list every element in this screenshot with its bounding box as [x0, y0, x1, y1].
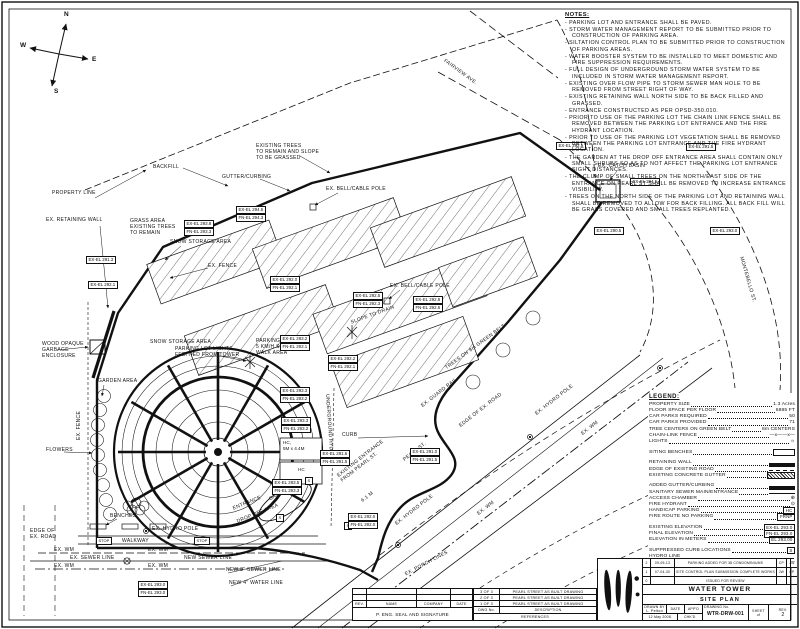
new-4-water-label: NEW 4" WATER LINE: [229, 580, 283, 586]
bell-cable-pole-label-2: EX. BELL/CABLE POLE: [390, 283, 450, 289]
note-item: - STORM WATER MANAGEMENT REPORT TO BE SU…: [565, 27, 791, 40]
ex-wm-label-3: EX. WM: [54, 563, 74, 569]
elevation-marker: EX-EL 292.2FN-EL 292.1: [328, 355, 358, 371]
seal-col-date: DATE: [451, 601, 472, 607]
note-item: - THE CLUMP OF SMALL TREES ON THE NORTH/…: [565, 174, 791, 193]
suppressed-curb-box-2: S: [276, 514, 284, 522]
elevation-marker: EX-EL 290.5: [594, 227, 624, 235]
dwg-no-header: DWG No.: [474, 607, 500, 613]
seal-col-rev: REV.: [353, 601, 367, 607]
note-item: - TREES ON THE NORTH SIDE OF THE PARKING…: [565, 194, 791, 213]
new-sewer-label: NEW SEWER LINE: [184, 555, 232, 561]
bell-cable-pole-label-1: EX. BELL/CABLE POLE: [326, 186, 386, 192]
drawing-subtitle: SITE PLAN: [643, 595, 797, 604]
elevation-marker: EX-EL 293.2FN-EL 293.1: [280, 335, 310, 351]
legend-heading: LEGEND:: [649, 394, 795, 400]
sewer-swatch: [769, 493, 795, 494]
seal-col-company: COMPANY: [417, 601, 451, 607]
notes-panel: NOTES: - PARKING LOT AND ENTRANCE SHALL …: [565, 12, 791, 214]
company-logo: [598, 559, 643, 620]
suppressed-curb-box-1: S: [305, 477, 313, 485]
note-item: - PARKING LOT AND ENTRANCE SHALL BE PAVE…: [565, 20, 791, 26]
ex-fence-label: EX. FENCE: [208, 263, 237, 269]
title-block: 2 09-05-13 PARKING ADDED FOR 38 CONDOMIN…: [597, 558, 791, 621]
ex-sewer-label: EX. SEWER LINE: [70, 555, 115, 561]
snow-storage-label-1: SNOW STORAGE AREA: [170, 239, 231, 245]
elevation-marker: EX-EL 293.5FN-EL 293.3: [272, 479, 302, 495]
backfill-label: BACKFILL: [153, 164, 179, 170]
gutter-curbing-label: GUTTER/CURBING: [222, 174, 271, 180]
left-road-lines: [24, 505, 55, 616]
stop-box-1: STOP: [96, 537, 112, 545]
elevation-marker: EX-EL 291.6FN-EL 291.5: [320, 450, 350, 466]
site-plan-sheet: N W E S PROPERTY LINE EX. RETAINING WALL…: [0, 0, 800, 629]
compass-n: N: [64, 11, 69, 19]
walkway-label: WALKWAY: [122, 538, 149, 544]
note-item: - WATER BOOSTER SYSTEM TO BE INSTALLED T…: [565, 54, 791, 67]
compass-rose-icon: [30, 24, 88, 86]
references-cell: REFERENCES: [474, 614, 596, 620]
sheet-list-table: 3 OF 3PEARL STREET AS BUILT DRAWING 2 OF…: [473, 588, 597, 621]
retaining-wall-label: EX. RETAINING WALL: [46, 217, 103, 223]
garden-area-label: GARDEN AREA: [98, 378, 137, 384]
elevation-marker: EX-EL 294.5FN-EL 294.3: [236, 206, 266, 222]
compass-s: S: [54, 88, 59, 96]
added-gutter-swatch: [769, 486, 795, 490]
property-line-label: PROPERTY LINE: [52, 190, 96, 196]
seal-signature-cell: P. ENG. SEAL AND SIGNATURE: [353, 608, 472, 620]
wall-swatch: [769, 463, 795, 467]
elevation-marker: EX-EL 292.1: [88, 281, 118, 289]
curb-label: CURB: [342, 432, 357, 438]
garbage-enclosure-label: WOOD OPAQUE GARBAGE ENCLOSURE: [42, 341, 84, 359]
elevation-marker: EX-EL 293.8FN-EL 293.3: [184, 220, 214, 236]
drawing-title: WATER TOWER: [643, 585, 797, 594]
note-item: - THE GARDEN AT THE DROP OFF ENTRANCE AR…: [565, 155, 791, 174]
elevation-marker: EX-EL 292.5FN-EL 292.3: [353, 292, 383, 308]
flowers-label: FLOWERS: [46, 447, 73, 453]
parking-stall-banks: [147, 177, 538, 408]
bench-swatch: [773, 449, 795, 456]
snow-storage-label-2: SNOW STORAGE AREA: [150, 339, 211, 345]
legend-row-concrete-gutter: EXISTING CONCRETE GUTTER: [649, 473, 795, 479]
elevation-marker: EX-EL 293.0: [710, 227, 740, 235]
elevation-marker: EX-EL 293.0FN-EL 293.0: [138, 581, 168, 597]
drawing-number: WTR-DRW-001: [707, 611, 744, 617]
hc-stall-label-1: HC, 5M x 4.4M: [281, 439, 306, 453]
notes-heading: NOTES:: [565, 12, 791, 18]
note-item: - PRIOR TO USE OF THE PARKING LOT VEGETA…: [565, 135, 791, 154]
ex-fence-left-label: EX. FENCE: [76, 411, 82, 440]
ex-wm-label-4: EX. WM: [148, 563, 168, 569]
note-item: - EXISTING OVER FLOW PIPE TO STORM SEWER…: [565, 81, 791, 94]
new-8-sewer-label: NEW 8" SEWER LINE: [226, 567, 281, 573]
elevation-marker: EX-EL 292.8FN-EL 292.6: [413, 296, 443, 312]
legend-panel: LEGEND: PROPERTY SIZE1.3 Acres FLOOR SPA…: [648, 393, 796, 568]
benches-label: BENCHES: [110, 513, 136, 519]
elevation-marker: EX-EL 293.3FN-EL 293.2: [280, 387, 310, 403]
description-header: DESCRIPTION: [500, 607, 596, 613]
ex-wm-label-2: EX. WM: [148, 547, 168, 553]
parking-lights-label: PARKING LOT LIGHTS FED/TIED FROM TOWER: [175, 346, 239, 358]
note-item: - PRIOR TO USE OF THE PARKING LOT THE CH…: [565, 115, 791, 134]
stop-box-2: STOP: [194, 537, 210, 545]
gutter-swatch: [767, 472, 795, 479]
note-item: - ENTRANCE CONSTRUCTED AS PER OPSD-350.0…: [565, 108, 791, 114]
edge-of-road-label-left: EDGE OF EX. ROAD: [30, 528, 56, 540]
seal-table: REV. NAME COMPANY DATE P. ENG. SEAL AND …: [352, 588, 473, 621]
ex-wm-label-1: EX. WM: [54, 547, 74, 553]
elevation-marker: EX-EL 293.3FN-EL 293.2: [281, 417, 311, 433]
compass-w: W: [20, 42, 26, 50]
elevation-marker: EX-EL 291.3: [86, 256, 116, 264]
note-item: - FULL DESIGN OF UNDERGROUND STORM WATER…: [565, 67, 791, 80]
retaining-wall-line: [93, 311, 114, 378]
hc-stall-label-2: HC: [296, 466, 307, 474]
hydro-pole-label-3: EX. HYDRO POLE: [152, 526, 198, 532]
seal-col-name: NAME: [367, 601, 417, 607]
grass-area-label: GRASS AREA EXISTING TREES TO REMAIN: [130, 218, 176, 236]
revision-number: 2: [781, 612, 784, 618]
elevation-marker: EX-EL 292.0FN-EL 292.0: [348, 513, 378, 529]
note-item: - EXISTING RETAINING WALL NORTH SIDE TO …: [565, 94, 791, 107]
elevation-marker: EX-EL 291.0FN-EL 291.5: [410, 448, 440, 464]
light-icon: ☼: [790, 439, 795, 445]
elevation-marker: EX-EL 292.0FN-EL 292.1: [270, 276, 300, 292]
compass-e: E: [92, 56, 97, 64]
note-item: - SILTATION CONTROL PLAN TO BE SUBMITTED…: [565, 40, 791, 53]
existing-trees-label: EXISTING TREES TO REMAIN AND SLOPE TO BE…: [256, 143, 319, 161]
